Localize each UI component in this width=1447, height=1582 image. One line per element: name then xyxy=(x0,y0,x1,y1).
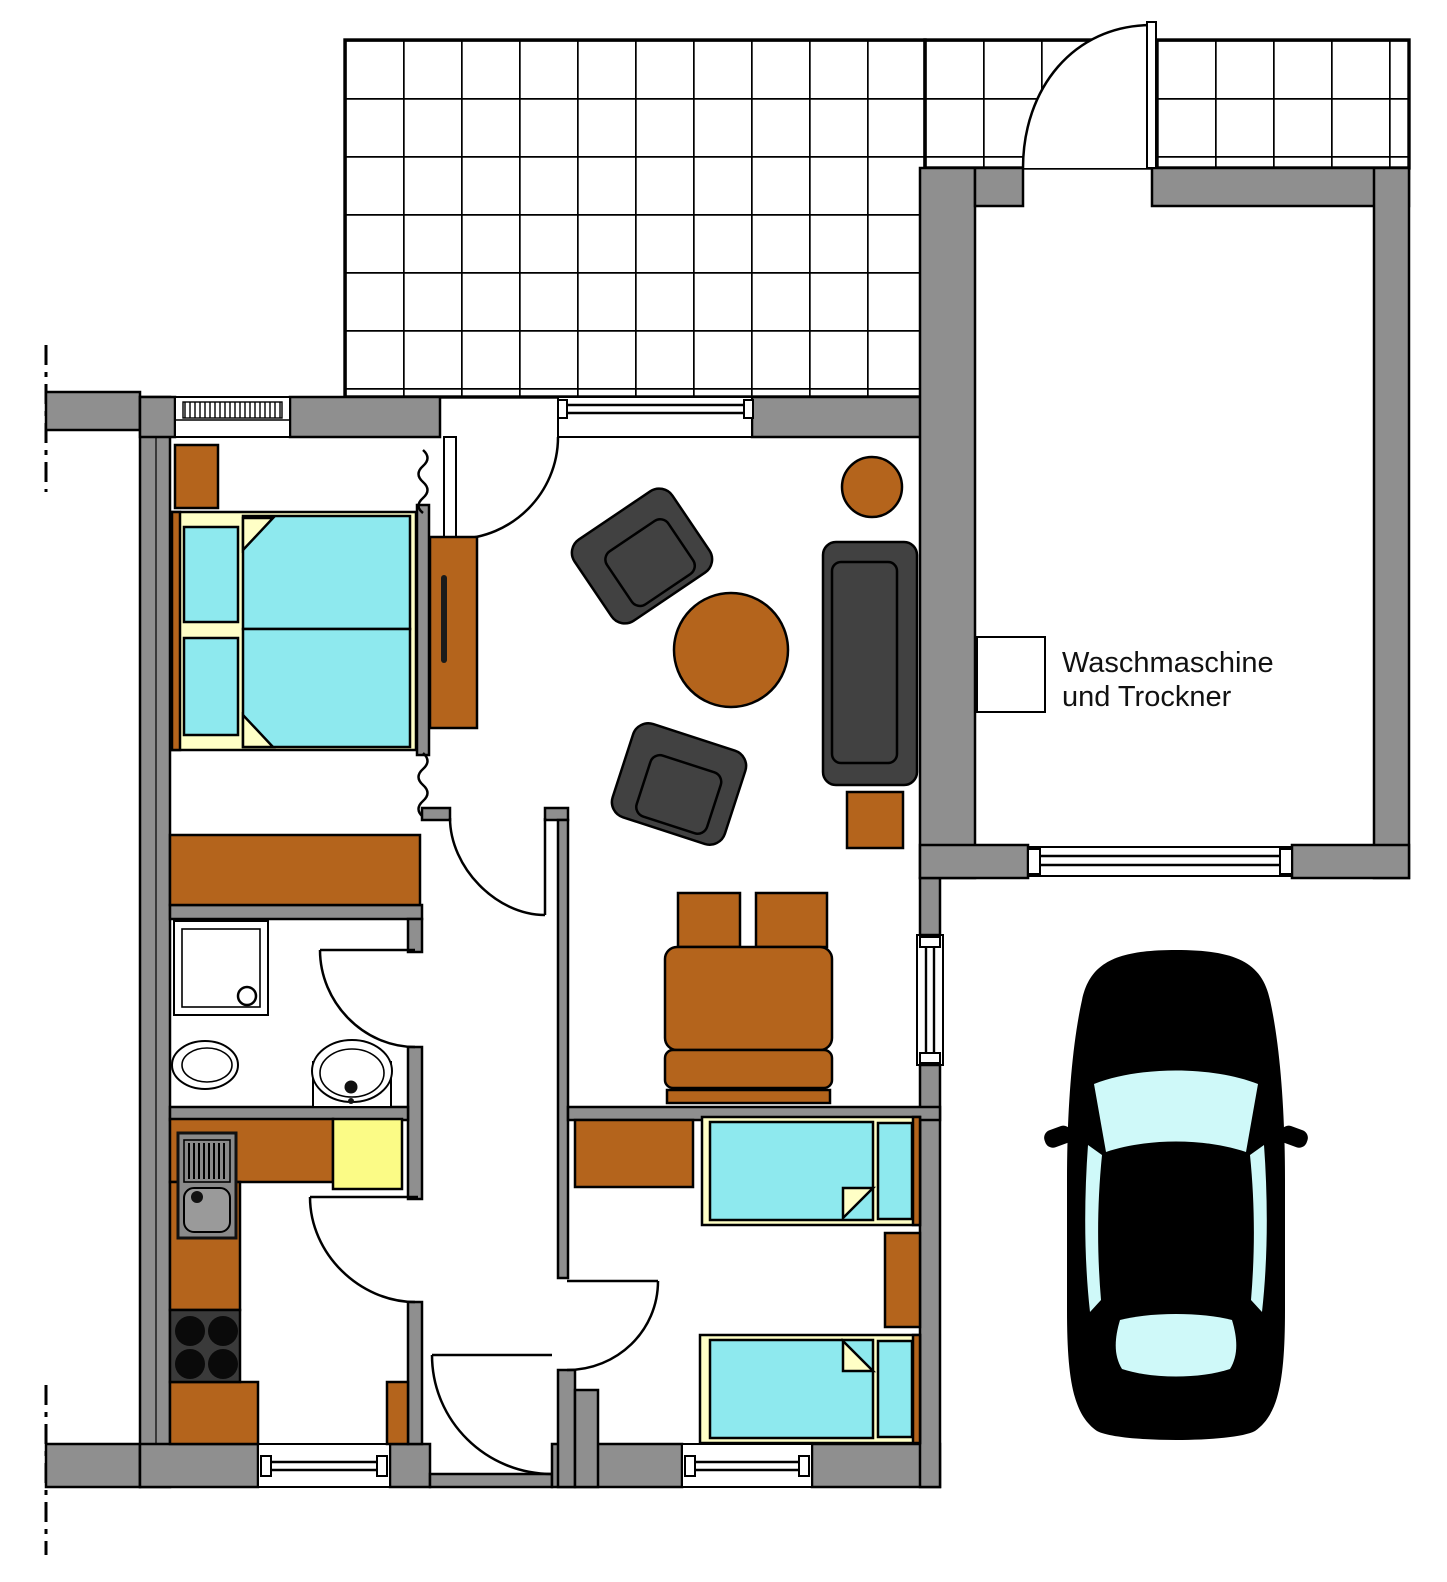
terrace-tile-area-main xyxy=(345,40,925,397)
utility-room-walls xyxy=(920,168,1409,878)
single-bed-top-headstrip xyxy=(913,1117,920,1225)
wall-stub-bottom-left xyxy=(46,1444,140,1487)
utility-door-leaf xyxy=(1147,22,1156,168)
bathroom-east-wall-2 xyxy=(408,1047,422,1199)
stove-burner-2 xyxy=(208,1316,238,1346)
entry-door-swing-arc xyxy=(456,437,558,539)
living-window-cap-right xyxy=(744,400,753,418)
dining-table xyxy=(665,947,832,1050)
kitchen-counter-bottom-right xyxy=(387,1382,408,1444)
bedroom-bathroom-wall xyxy=(170,905,422,919)
wall-north-1 xyxy=(140,397,175,437)
bed-headboard-strip xyxy=(172,512,180,750)
car-windshield xyxy=(1094,1071,1258,1153)
kitchen-east-wall xyxy=(408,1302,422,1444)
stove-burner-1 xyxy=(175,1316,205,1346)
kidsroom-window-south-cap-left xyxy=(685,1456,695,1476)
utility-wall-north-right xyxy=(1152,168,1409,206)
wall-north-2 xyxy=(290,397,440,437)
side-table xyxy=(847,792,903,848)
terrace-tiles xyxy=(345,40,1409,397)
single-bed-bottom-pillow xyxy=(878,1341,912,1437)
bedroom xyxy=(170,445,477,905)
wall-west xyxy=(140,397,170,1487)
dining-chair-2 xyxy=(756,893,827,947)
kitchen-sink-basin xyxy=(184,1188,230,1232)
kids-door xyxy=(567,1281,658,1370)
kitchen-counter-bottom-left xyxy=(170,1382,258,1444)
wall-east-lower xyxy=(920,1065,940,1487)
wall-stub-top-left xyxy=(46,392,140,430)
kitchen-window-cap-left xyxy=(261,1456,271,1476)
kitchen-table xyxy=(333,1119,402,1189)
divider-squiggle-top xyxy=(419,450,428,513)
bedroom-window-glazing xyxy=(183,402,282,418)
floorplan-canvas: Waschmaschine und Trockner xyxy=(0,0,1447,1582)
single-bed-top-pillow xyxy=(878,1123,912,1219)
kidsroom-window-east-cap-top xyxy=(920,937,940,947)
wall-south-1 xyxy=(140,1444,258,1487)
bedroom-divider-wall xyxy=(417,505,429,755)
sofa xyxy=(823,542,917,785)
utility-label-line1: Waschmaschine xyxy=(1062,647,1274,679)
car xyxy=(1042,950,1310,1440)
single-bed-top xyxy=(702,1117,920,1225)
utility-wall-south-left xyxy=(920,845,1028,878)
utility-wall-east xyxy=(1374,168,1409,878)
stove-burner-4 xyxy=(208,1349,238,1379)
wall-north-3 xyxy=(752,397,940,437)
sofa-seat xyxy=(832,562,897,763)
hall-door-swing-arc xyxy=(450,818,545,915)
utility-window xyxy=(1028,847,1292,876)
living-room xyxy=(566,457,917,1103)
kidsroom-window-south xyxy=(682,1444,812,1487)
bed-mattress-bottom xyxy=(243,629,410,747)
living-window-cap-left xyxy=(558,400,567,418)
kidsroom-window-east xyxy=(917,935,943,1065)
utility-window-cap-left xyxy=(1028,849,1040,874)
double-bed xyxy=(172,512,416,750)
bed-pillow-top xyxy=(184,527,238,622)
bedroom-dresser xyxy=(430,537,477,728)
wall-south-2 xyxy=(390,1444,430,1487)
rear-door xyxy=(432,1355,552,1474)
sink-faucet xyxy=(345,1081,358,1094)
kitchen xyxy=(170,1119,408,1444)
dresser-handle xyxy=(441,575,447,663)
rear-door-swing-arc xyxy=(432,1355,552,1474)
coffee-table xyxy=(674,593,788,707)
floorplan-svg: Waschmaschine und Trockner xyxy=(0,0,1447,1582)
living-hall-wall-left xyxy=(422,808,450,820)
kitchen-window xyxy=(258,1444,390,1487)
sink xyxy=(312,1040,392,1107)
bathroom-door xyxy=(320,950,415,1047)
entry-door-leaf xyxy=(444,437,456,539)
bed-pillow-bottom xyxy=(184,638,238,735)
wall-east-upper xyxy=(920,878,940,935)
toilet xyxy=(172,1041,238,1089)
kidsroom-window-east-cap-bottom xyxy=(920,1053,940,1063)
kitchen-sink-faucet xyxy=(191,1191,203,1203)
kids-door-swing-arc xyxy=(567,1281,658,1370)
living-hall-wall-right xyxy=(545,808,568,820)
stove-burner-3 xyxy=(175,1349,205,1379)
bedroom-wardrobe xyxy=(170,835,420,905)
entry-door xyxy=(444,437,558,539)
wall-east-column xyxy=(920,168,975,878)
kidsroom-window-south-cap-right xyxy=(799,1456,809,1476)
bathroom-east-wall-1 xyxy=(408,919,422,952)
dining-chair-1 xyxy=(678,893,740,947)
kitchen-door xyxy=(310,1197,418,1302)
dining-bench-back xyxy=(667,1090,830,1103)
armchair-2 xyxy=(608,719,751,849)
hall-east-wall xyxy=(558,820,568,1278)
single-bed-bottom xyxy=(700,1335,920,1443)
single-bed-bottom-headstrip xyxy=(913,1335,920,1443)
kitchen-window-cap-right xyxy=(377,1456,387,1476)
hall-door xyxy=(450,818,545,915)
utility-window-cap-right xyxy=(1280,849,1292,874)
utility-wall-north-left xyxy=(975,168,1023,206)
kids-nightstand xyxy=(885,1233,920,1327)
car-rear-window xyxy=(1116,1314,1237,1377)
bedroom-nightstand xyxy=(175,445,218,508)
living-window xyxy=(558,397,752,437)
utility-room: Waschmaschine und Trockner xyxy=(977,637,1274,713)
utility-wall-south-right xyxy=(1292,845,1409,878)
washing-machine xyxy=(977,637,1045,712)
side-stool xyxy=(842,457,902,517)
utility-label-line2: und Trockner xyxy=(1062,681,1232,713)
wall-south-door-sill xyxy=(430,1474,552,1487)
terrace-tile-area-right xyxy=(925,40,1409,168)
kids-desk xyxy=(575,1120,693,1187)
kitchen-sink-unit xyxy=(178,1133,236,1238)
sink-drain-dot xyxy=(348,1098,354,1104)
kids-room-corner-step xyxy=(575,1390,598,1487)
bed-mattress-top xyxy=(243,516,410,629)
dining-bench xyxy=(665,1050,832,1088)
kitchen-door-swing-arc xyxy=(310,1197,415,1302)
shower xyxy=(174,921,268,1015)
stove xyxy=(170,1310,240,1382)
dining-set xyxy=(665,893,832,1103)
hall-east-wall-stub xyxy=(558,1370,575,1487)
bathroom-door-swing-arc xyxy=(320,950,415,1047)
